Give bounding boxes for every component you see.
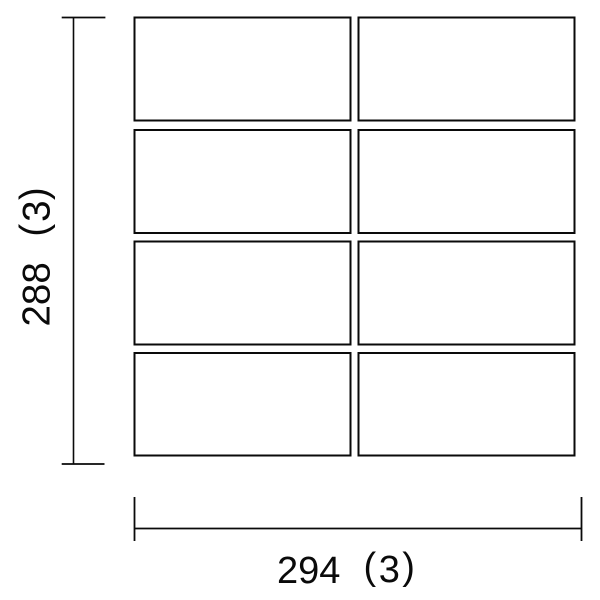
svg-text:(: (	[364, 546, 377, 588]
svg-text:3: 3	[16, 200, 59, 221]
svg-text:(: (	[13, 224, 56, 237]
svg-text:3: 3	[379, 549, 400, 591]
svg-text:294: 294	[277, 550, 340, 592]
svg-text:): )	[402, 546, 415, 588]
svg-text:288: 288	[16, 262, 59, 326]
svg-text:): )	[13, 187, 56, 200]
